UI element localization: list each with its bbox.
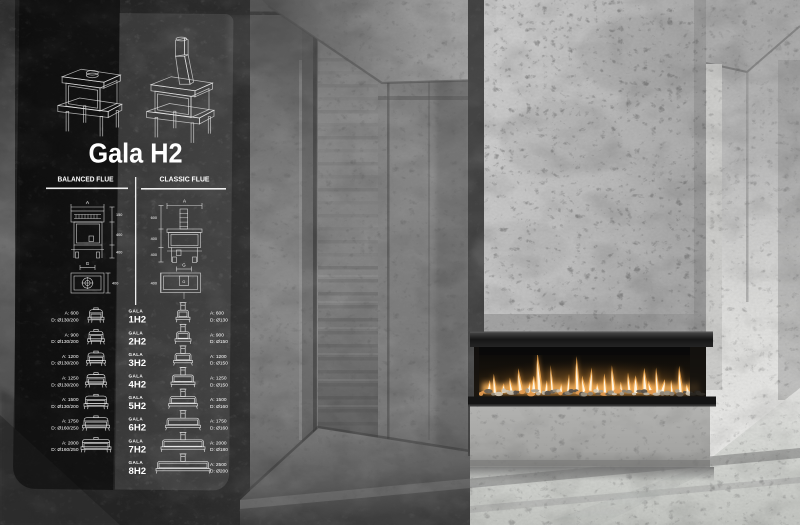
svg-text:D: Ø200: D: Ø200 — [210, 469, 228, 475]
svg-text:A: 1200: A: 1200 — [210, 354, 227, 360]
svg-text:150: 150 — [116, 213, 122, 217]
svg-text:D: Ø130/200: D: Ø130/200 — [51, 361, 79, 367]
svg-text:400: 400 — [116, 233, 122, 237]
svg-text:GALA: GALA — [129, 417, 144, 422]
svg-text:D: Ø150: D: Ø150 — [210, 339, 228, 345]
svg-text:A: 900: A: 900 — [65, 332, 79, 338]
svg-text:A: 2000: A: 2000 — [62, 440, 79, 446]
svg-text:7H2: 7H2 — [129, 444, 147, 455]
svg-text:4H2: 4H2 — [129, 380, 147, 391]
svg-text:400: 400 — [116, 251, 122, 255]
svg-text:8H2: 8H2 — [129, 466, 147, 477]
svg-text:400: 400 — [151, 237, 157, 241]
svg-text:GALA: GALA — [129, 352, 144, 357]
svg-text:GALA: GALA — [129, 395, 144, 400]
svg-text:400: 400 — [151, 282, 157, 286]
svg-text:3H2: 3H2 — [129, 358, 147, 369]
svg-text:A: 1500: A: 1500 — [62, 397, 79, 403]
svg-text:D: Ø130/200: D: Ø130/200 — [51, 318, 79, 324]
svg-text:Gala H2: Gala H2 — [89, 138, 183, 169]
svg-text:6H2: 6H2 — [129, 423, 147, 434]
svg-text:A: 1250: A: 1250 — [62, 376, 79, 382]
svg-text:A: 1750: A: 1750 — [210, 419, 227, 425]
svg-text:GALA: GALA — [129, 309, 144, 314]
svg-text:A: 900: A: 900 — [210, 332, 224, 338]
svg-text:D: Ø180: D: Ø180 — [210, 447, 228, 453]
svg-text:D: Ø130/200: D: Ø130/200 — [51, 339, 79, 345]
svg-text:GALA: GALA — [129, 374, 144, 379]
svg-text:A: 2000: A: 2000 — [210, 440, 227, 446]
svg-text:GALA: GALA — [129, 460, 144, 465]
svg-text:400: 400 — [151, 253, 157, 257]
svg-text:CLASSIC FLUE: CLASSIC FLUE — [160, 177, 210, 184]
svg-text:A: 1750: A: 1750 — [62, 419, 79, 425]
svg-text:D: Ø160: D: Ø160 — [210, 404, 228, 410]
svg-text:2H2: 2H2 — [129, 336, 147, 347]
svg-text:A: 1500: A: 1500 — [210, 397, 227, 403]
svg-text:GALA: GALA — [129, 438, 144, 443]
svg-text:G: G — [182, 280, 185, 284]
svg-text:GALA: GALA — [129, 330, 144, 335]
svg-text:D: Ø160/250: D: Ø160/250 — [51, 426, 79, 432]
svg-text:A: 600: A: 600 — [210, 311, 224, 317]
svg-text:A: 600: A: 600 — [65, 311, 79, 317]
svg-text:A: 1250: A: 1250 — [210, 376, 227, 382]
svg-text:D: Ø130/200: D: Ø130/200 — [51, 382, 79, 388]
svg-text:A: 2500: A: 2500 — [210, 462, 227, 468]
svg-text:5H2: 5H2 — [129, 401, 147, 412]
svg-text:D: Ø130/200: D: Ø130/200 — [51, 404, 79, 410]
svg-text:D: Ø160/250: D: Ø160/250 — [51, 447, 79, 453]
svg-text:D: Ø130: D: Ø130 — [210, 318, 228, 324]
svg-text:A: 1200: A: 1200 — [62, 354, 79, 360]
svg-text:G: G — [86, 261, 90, 266]
svg-text:400: 400 — [112, 282, 118, 286]
svg-text:D: Ø150: D: Ø150 — [210, 382, 228, 388]
svg-text:G: G — [182, 263, 186, 268]
svg-text:BALANCED FLUE: BALANCED FLUE — [58, 177, 114, 184]
svg-text:D: Ø160: D: Ø160 — [210, 426, 228, 432]
svg-text:600: 600 — [151, 216, 157, 220]
svg-text:1H2: 1H2 — [129, 315, 147, 326]
svg-text:D: Ø150: D: Ø150 — [210, 361, 228, 367]
